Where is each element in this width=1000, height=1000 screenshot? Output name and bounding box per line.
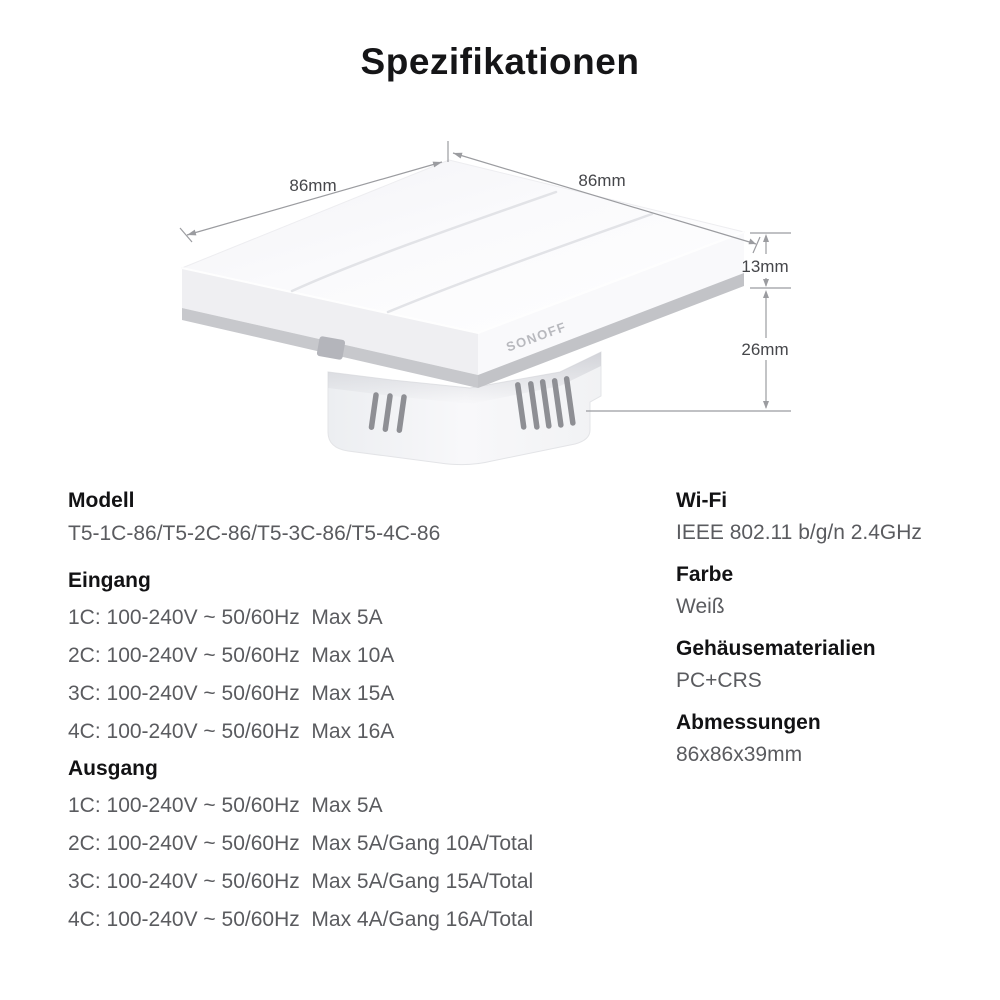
spec-label: Ausgang [68,757,658,781]
dimension-label-box-depth: 26mm [741,340,788,359]
spec-value: 4C: 100-240V ~ 50/60Hz Max 16A [68,713,658,751]
spec-label: Eingang [68,569,658,593]
spec-value: Weiß [676,593,986,620]
spec-section-gehaeusematerialien: Gehäusematerialien PC+CRS [676,637,986,694]
spec-value: 2C: 100-240V ~ 50/60Hz Max 5A/Gang 10A/T… [68,825,658,863]
device-faceplate: SONOFF [182,160,744,388]
spec-section-wifi: Wi-Fi IEEE 802.11 b/g/n 2.4GHz [676,489,986,546]
spec-label: Modell [68,489,658,513]
spec-value: 86x86x39mm [676,741,986,768]
spec-column-right: Wi-Fi IEEE 802.11 b/g/n 2.4GHz Farbe Wei… [676,489,986,785]
spec-value: IEEE 802.11 b/g/n 2.4GHz [676,519,986,546]
spec-value: PC+CRS [676,667,986,694]
spec-value: 2C: 100-240V ~ 50/60Hz Max 10A [68,637,658,675]
spec-section-ausgang: Ausgang 1C: 100-240V ~ 50/60Hz Max 5A 2C… [68,757,658,939]
spec-section-eingang: Eingang 1C: 100-240V ~ 50/60Hz Max 5A 2C… [68,569,658,751]
spec-value: 3C: 100-240V ~ 50/60Hz Max 15A [68,675,658,713]
spec-label: Abmessungen [676,711,986,735]
spec-section-modell: Modell T5-1C-86/T5-2C-86/T5-3C-86/T5-4C-… [68,489,658,549]
spec-label: Farbe [676,563,986,587]
spec-value: T5-1C-86/T5-2C-86/T5-3C-86/T5-4C-86 [68,519,658,549]
spec-column-left: Modell T5-1C-86/T5-2C-86/T5-3C-86/T5-4C-… [68,489,658,959]
spec-sheet: Spezifikationen [0,0,1000,1000]
spec-section-farbe: Farbe Weiß [676,563,986,620]
dimension-label-width-right: 86mm [578,171,625,190]
spec-value: 4C: 100-240V ~ 50/60Hz Max 4A/Gang 16A/T… [68,901,658,939]
dimension-label-panel-thickness: 13mm [741,257,788,276]
product-diagram: SONOFF [0,0,1000,480]
spec-value: 1C: 100-240V ~ 50/60Hz Max 5A [68,599,658,637]
spec-value: 3C: 100-240V ~ 50/60Hz Max 5A/Gang 15A/T… [68,863,658,901]
spec-value: 1C: 100-240V ~ 50/60Hz Max 5A [68,787,658,825]
spec-label: Gehäusematerialien [676,637,986,661]
spec-section-abmessungen: Abmessungen 86x86x39mm [676,711,986,768]
spec-label: Wi-Fi [676,489,986,513]
vent-slots-left [368,392,407,433]
dimension-label-width-left: 86mm [289,176,336,195]
